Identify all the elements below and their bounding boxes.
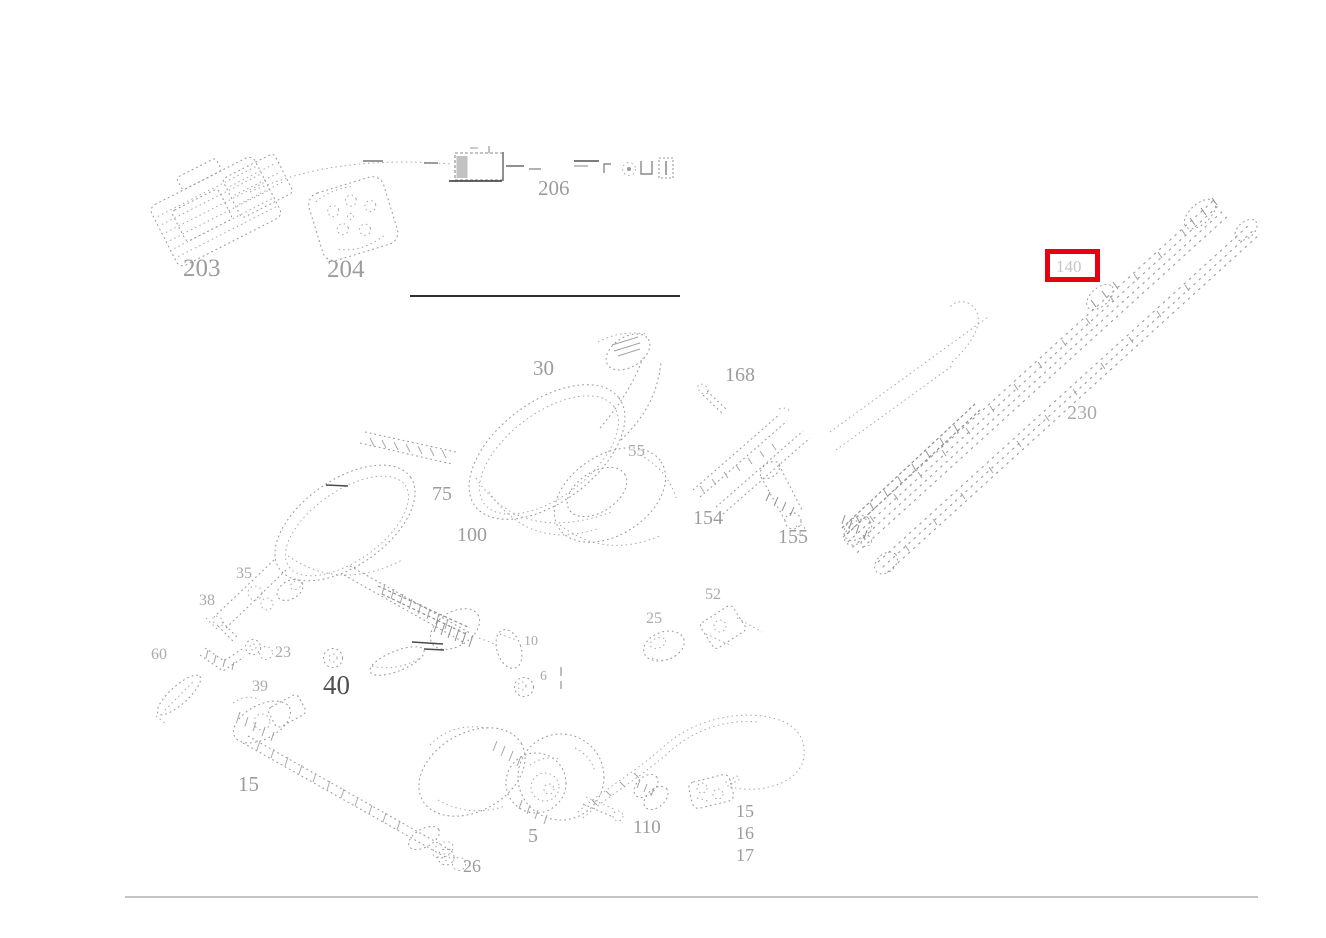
svg-text:5: 5 [528,825,538,847]
svg-text:39: 39 [252,678,268,695]
svg-text:155: 155 [778,526,808,548]
svg-text:230: 230 [1067,402,1097,424]
svg-text:110: 110 [633,817,661,838]
svg-text:55: 55 [628,441,645,460]
svg-text:30: 30 [533,356,554,380]
svg-text:168: 168 [725,364,755,386]
svg-text:25: 25 [646,610,662,627]
svg-text:15: 15 [238,772,259,796]
svg-text:52: 52 [705,586,721,603]
svg-text:60: 60 [151,646,167,663]
svg-text:26: 26 [463,856,481,876]
svg-text:16: 16 [736,823,754,843]
svg-text:40: 40 [323,670,350,700]
svg-text:23: 23 [275,644,291,661]
svg-text:154: 154 [693,507,723,529]
svg-text:75: 75 [432,483,452,505]
svg-text:100: 100 [457,524,487,546]
svg-text:15: 15 [736,801,754,821]
svg-text:38: 38 [199,592,215,609]
svg-text:140: 140 [1056,257,1082,276]
svg-text:203: 203 [183,255,221,282]
svg-text:204: 204 [327,256,365,283]
svg-text:6: 6 [540,669,547,684]
svg-text:10: 10 [524,634,538,649]
svg-text:35: 35 [236,565,252,582]
svg-text:206: 206 [538,176,570,200]
svg-text:17: 17 [736,845,754,865]
